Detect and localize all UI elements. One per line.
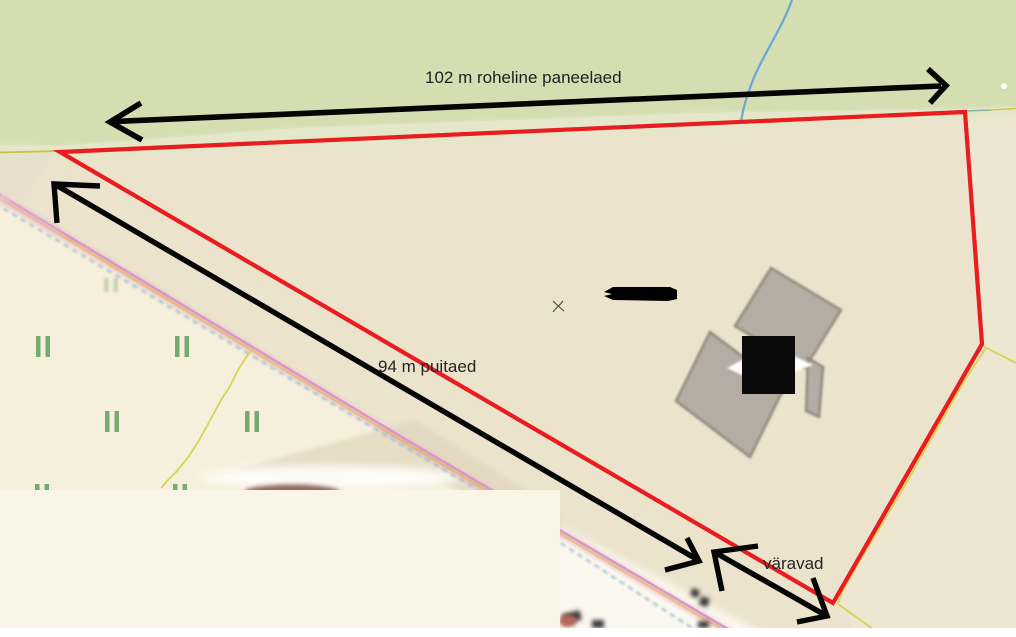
svg-text:94 m puitaed: 94 m puitaed [378, 357, 476, 376]
svg-text:102 m roheline paneelaed: 102 m roheline paneelaed [425, 68, 622, 87]
svg-text:väravad: väravad [763, 554, 823, 573]
